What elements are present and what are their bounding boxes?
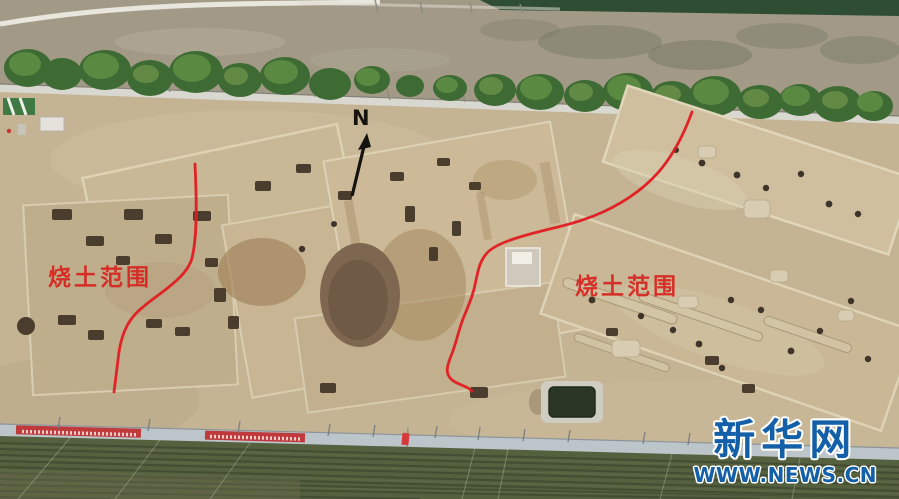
xinhuanet-watermark: 新华网 WWW.NEWS.CN bbox=[693, 419, 877, 485]
burnt-area-label-west: 烧土范围 bbox=[48, 267, 152, 290]
north-label: N bbox=[352, 108, 370, 129]
spoil-mound bbox=[320, 243, 400, 347]
burnt-area-label-east: 烧土范围 bbox=[575, 276, 679, 299]
xinhuanet-logo-text: 新华网 bbox=[693, 419, 877, 461]
aerial-photo-excavation-site: N 烧土范围 烧土范围 新华网 WWW.NEWS.CN bbox=[0, 0, 899, 499]
stone-feature bbox=[506, 248, 540, 286]
xinhuanet-url: WWW.NEWS.CN bbox=[693, 465, 877, 485]
